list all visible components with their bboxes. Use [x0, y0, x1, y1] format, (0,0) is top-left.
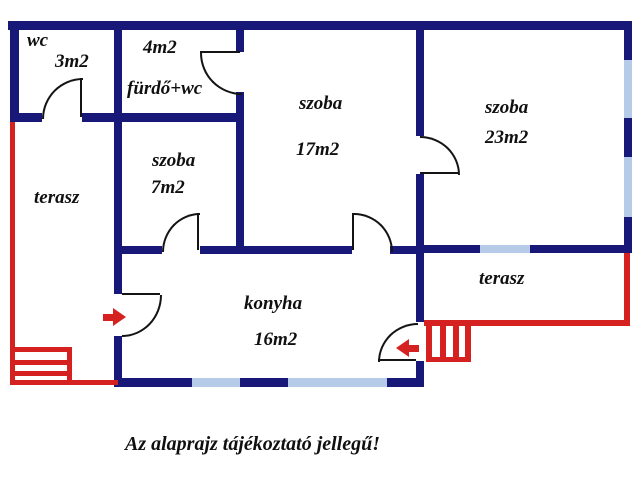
- wall-wc-furdo: [114, 30, 122, 122]
- wall-right-a: [624, 21, 632, 60]
- stairs-right-bottom: [426, 357, 471, 362]
- wall-konyha-bottom-a: [114, 378, 192, 387]
- window-konyha-1: [192, 378, 240, 387]
- wall-right-c: [624, 217, 632, 253]
- wall-szoba7-bottom-a: [114, 246, 162, 254]
- window-right-lower: [624, 157, 632, 217]
- stairs-left-step-2: [12, 360, 69, 365]
- entry-arrow-right-tail: [408, 345, 419, 352]
- wall-szoba23-bottom-b: [530, 245, 632, 253]
- terasz-left-edge: [10, 122, 15, 385]
- room-area-furdo: 4m2: [143, 38, 177, 57]
- room-label-terasz-left: terasz: [34, 188, 79, 207]
- stairs-left-edge: [67, 347, 72, 385]
- wall-szoba7-left: [114, 122, 122, 254]
- wall-konyha-left-a: [114, 254, 122, 294]
- window-konyha-2: [288, 378, 387, 387]
- door-arc-szoba7: [162, 213, 200, 252]
- wall-szoba7-bottom-b: [200, 246, 244, 254]
- floor-plan: wc 3m2 4m2 fürdő+wc szoba 7m2 szoba 17m2…: [0, 0, 640, 480]
- room-label-furdo: fürdő+wc: [127, 79, 202, 98]
- room-label-terasz-right: terasz: [479, 269, 524, 288]
- stairs-right-bar-3: [453, 322, 459, 362]
- room-label-wc: wc: [27, 31, 48, 50]
- wall-left-wc: [10, 21, 19, 122]
- door-arc-furdo: [200, 53, 242, 95]
- window-szoba23-bottom: [480, 245, 530, 253]
- door-arc-szoba17-szoba23: [420, 136, 460, 175]
- wall-right-b: [624, 118, 632, 157]
- stairs-right-bar-2: [440, 322, 446, 362]
- wall-furdo-right-upper: [236, 30, 244, 52]
- disclaimer-text: Az alaprajz tájékoztató jellegű!: [125, 434, 380, 454]
- stairs-right-bar-4: [465, 322, 471, 362]
- wall-wc-bottom-a: [10, 113, 42, 122]
- room-area-szoba17: 17m2: [296, 140, 339, 159]
- door-arc-szoba17-bottom: [354, 213, 393, 252]
- stairs-left-step-1: [12, 347, 69, 352]
- wall-szoba7-szoba17: [236, 92, 244, 254]
- wall-top: [8, 21, 632, 30]
- room-label-szoba23: szoba: [485, 98, 528, 117]
- wall-konyha-bottom-c: [387, 378, 424, 387]
- wall-furdo-bottom: [114, 113, 244, 122]
- door-arc-terasz-konyha: [122, 295, 162, 337]
- wall-szoba17-szoba23-lower: [416, 174, 424, 322]
- room-area-konyha: 16m2: [254, 330, 297, 349]
- window-right-upper: [624, 60, 632, 118]
- wall-szoba23-bottom-a: [424, 245, 480, 253]
- terasz-left-bottom: [10, 380, 118, 385]
- entry-arrow-left-icon: [113, 308, 126, 326]
- room-area-wc: 3m2: [55, 52, 89, 71]
- wall-szoba17-bottom-a: [244, 246, 352, 254]
- stairs-right-bar-1: [426, 322, 432, 362]
- room-label-konyha: konyha: [244, 294, 302, 313]
- terasz-right-edge: [624, 253, 630, 326]
- room-label-szoba7: szoba: [152, 151, 195, 170]
- wall-konyha-bottom-b: [240, 378, 288, 387]
- room-label-szoba17: szoba: [299, 94, 342, 113]
- room-area-szoba7: 7m2: [151, 178, 185, 197]
- wall-szoba17-szoba23-upper: [416, 30, 424, 136]
- stairs-left-step-3: [12, 371, 69, 376]
- door-arc-wc: [42, 78, 83, 119]
- room-area-szoba23: 23m2: [485, 128, 528, 147]
